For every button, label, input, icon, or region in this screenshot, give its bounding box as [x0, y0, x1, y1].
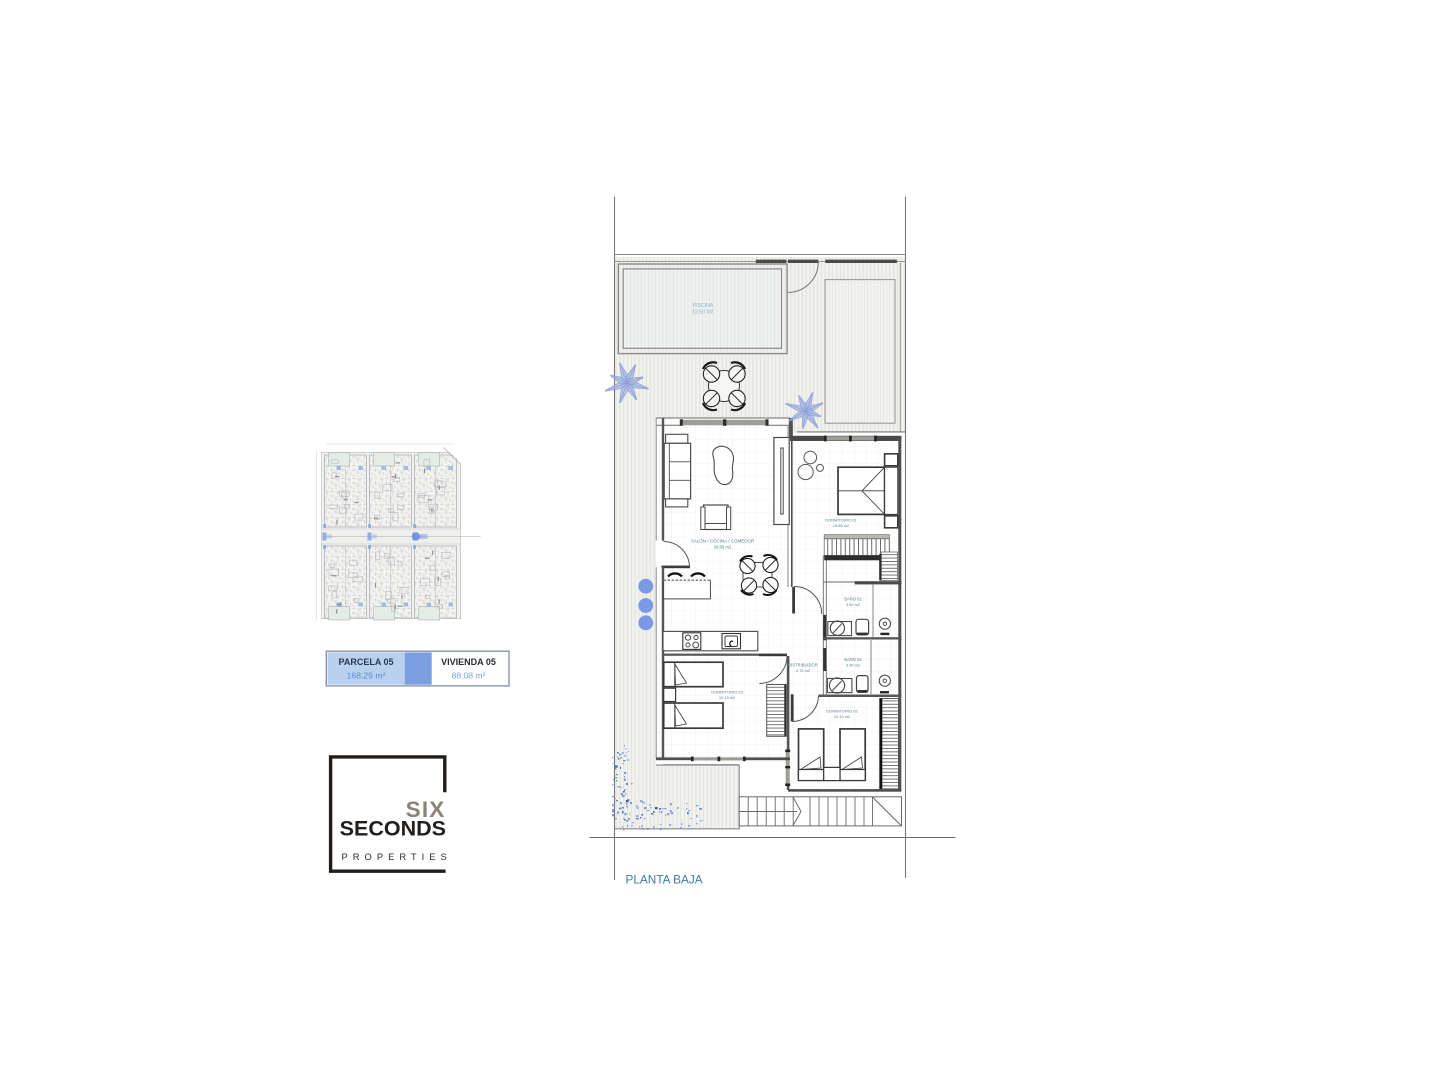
svg-text:3.82 m2: 3.82 m2: [846, 602, 860, 607]
svg-text:168.29 m²: 168.29 m²: [347, 671, 386, 681]
svg-text:DORMITORIO 02: DORMITORIO 02: [826, 709, 858, 714]
svg-text:DORMITORIO 01: DORMITORIO 01: [825, 518, 857, 523]
svg-text:26.00 m2: 26.00 m2: [714, 545, 732, 550]
svg-text:VIVIENDA 05: VIVIENDA 05: [441, 657, 496, 667]
svg-text:2.75 m2: 2.75 m2: [796, 668, 810, 673]
svg-text:PARCELA 05: PARCELA 05: [338, 657, 393, 667]
svg-text:SALÓN / COCINA / COMEDOR: SALÓN / COCINA / COMEDOR: [691, 538, 755, 544]
svg-text:15.88 m2: 15.88 m2: [833, 523, 849, 528]
svg-text:DORMITORIO 03: DORMITORIO 03: [711, 690, 743, 695]
svg-text:PLANTA BAJA: PLANTA BAJA: [626, 873, 703, 887]
svg-text:DISTRIBUIDOR: DISTRIBUIDOR: [788, 663, 817, 668]
svg-text:88.08 m²: 88.08 m²: [452, 671, 486, 681]
svg-text:10.13 m2: 10.13 m2: [719, 695, 735, 700]
svg-text:12.50 M2: 12.50 M2: [692, 310, 714, 316]
svg-text:PROPERTIES: PROPERTIES: [342, 851, 452, 862]
svg-text:3.95 m2: 3.95 m2: [846, 663, 860, 668]
svg-text:PISCINA: PISCINA: [693, 303, 714, 309]
svg-text:SECONDS: SECONDS: [340, 817, 446, 841]
svg-text:BAÑO 02: BAÑO 02: [844, 657, 862, 662]
svg-text:10.10 m2: 10.10 m2: [834, 714, 850, 719]
svg-text:BAÑO 01: BAÑO 01: [844, 597, 862, 602]
